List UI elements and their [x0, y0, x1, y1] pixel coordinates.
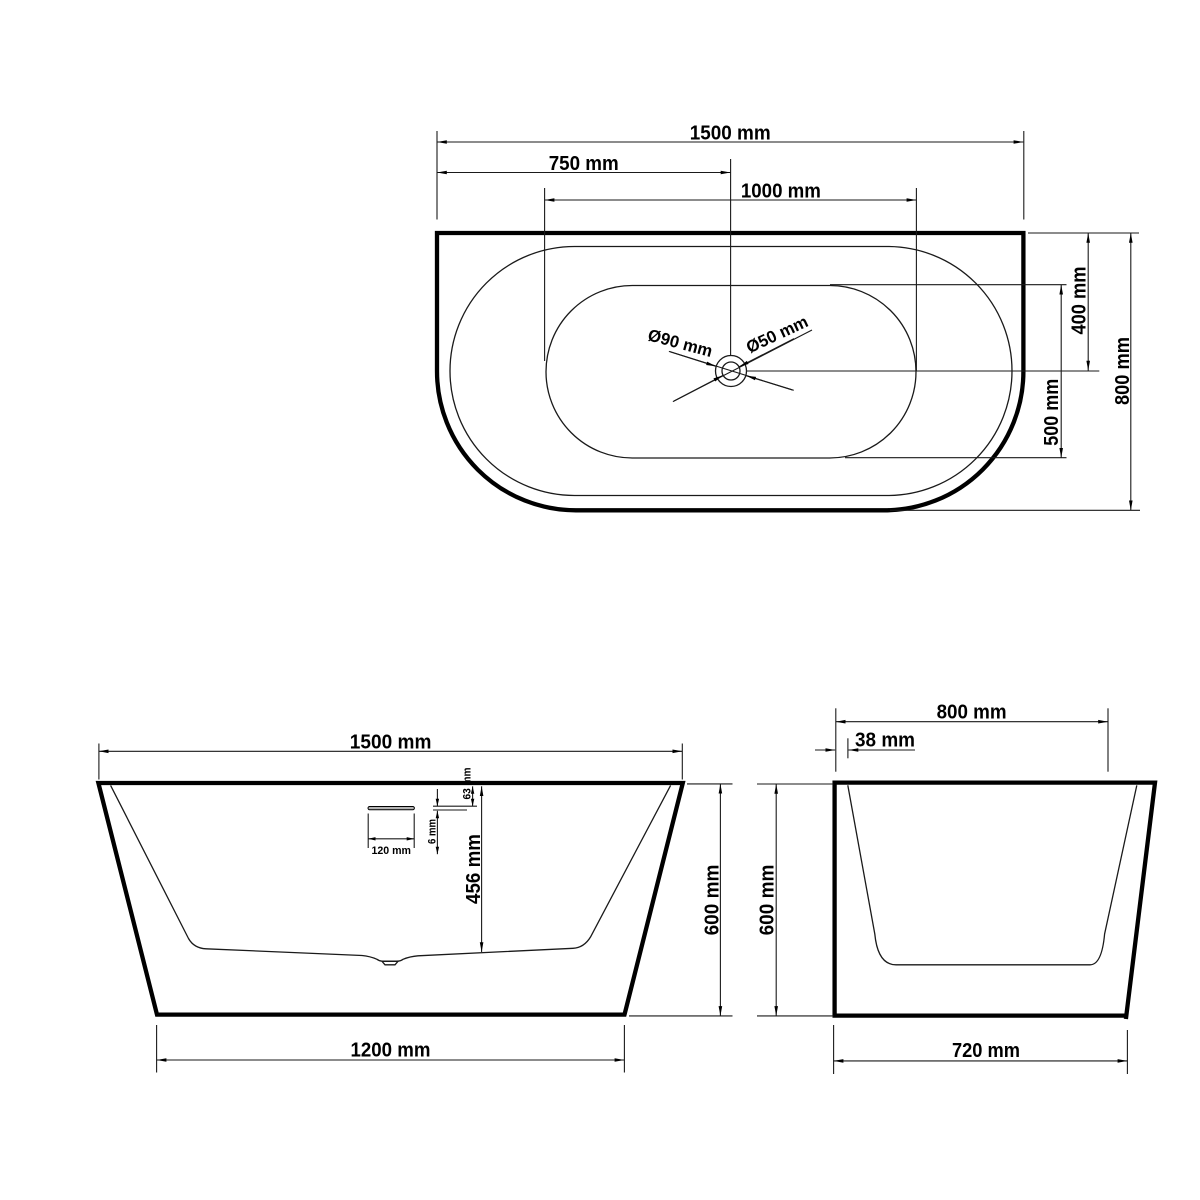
svg-text:120 mm: 120 mm — [371, 845, 411, 857]
svg-text:1500 mm: 1500 mm — [690, 122, 771, 144]
svg-text:800 mm: 800 mm — [1112, 337, 1134, 405]
svg-text:Ø90 mm: Ø90 mm — [646, 326, 715, 361]
svg-text:400 mm: 400 mm — [1068, 267, 1090, 335]
svg-text:Ø50 mm: Ø50 mm — [743, 312, 811, 357]
svg-text:1000 mm: 1000 mm — [741, 180, 821, 202]
svg-text:38 mm: 38 mm — [855, 730, 915, 752]
svg-text:1500 mm: 1500 mm — [350, 732, 432, 754]
svg-text:800 mm: 800 mm — [937, 702, 1007, 724]
svg-text:600 mm: 600 mm — [702, 865, 724, 936]
svg-text:63 mm: 63 mm — [462, 767, 474, 799]
svg-text:456 mm: 456 mm — [463, 834, 485, 904]
svg-text:1200 mm: 1200 mm — [351, 1039, 431, 1061]
svg-text:720 mm: 720 mm — [952, 1040, 1020, 1062]
svg-text:500 mm: 500 mm — [1041, 379, 1063, 446]
svg-text:600 mm: 600 mm — [757, 865, 779, 936]
svg-text:6 mm: 6 mm — [426, 819, 438, 844]
svg-text:750 mm: 750 mm — [549, 153, 619, 175]
